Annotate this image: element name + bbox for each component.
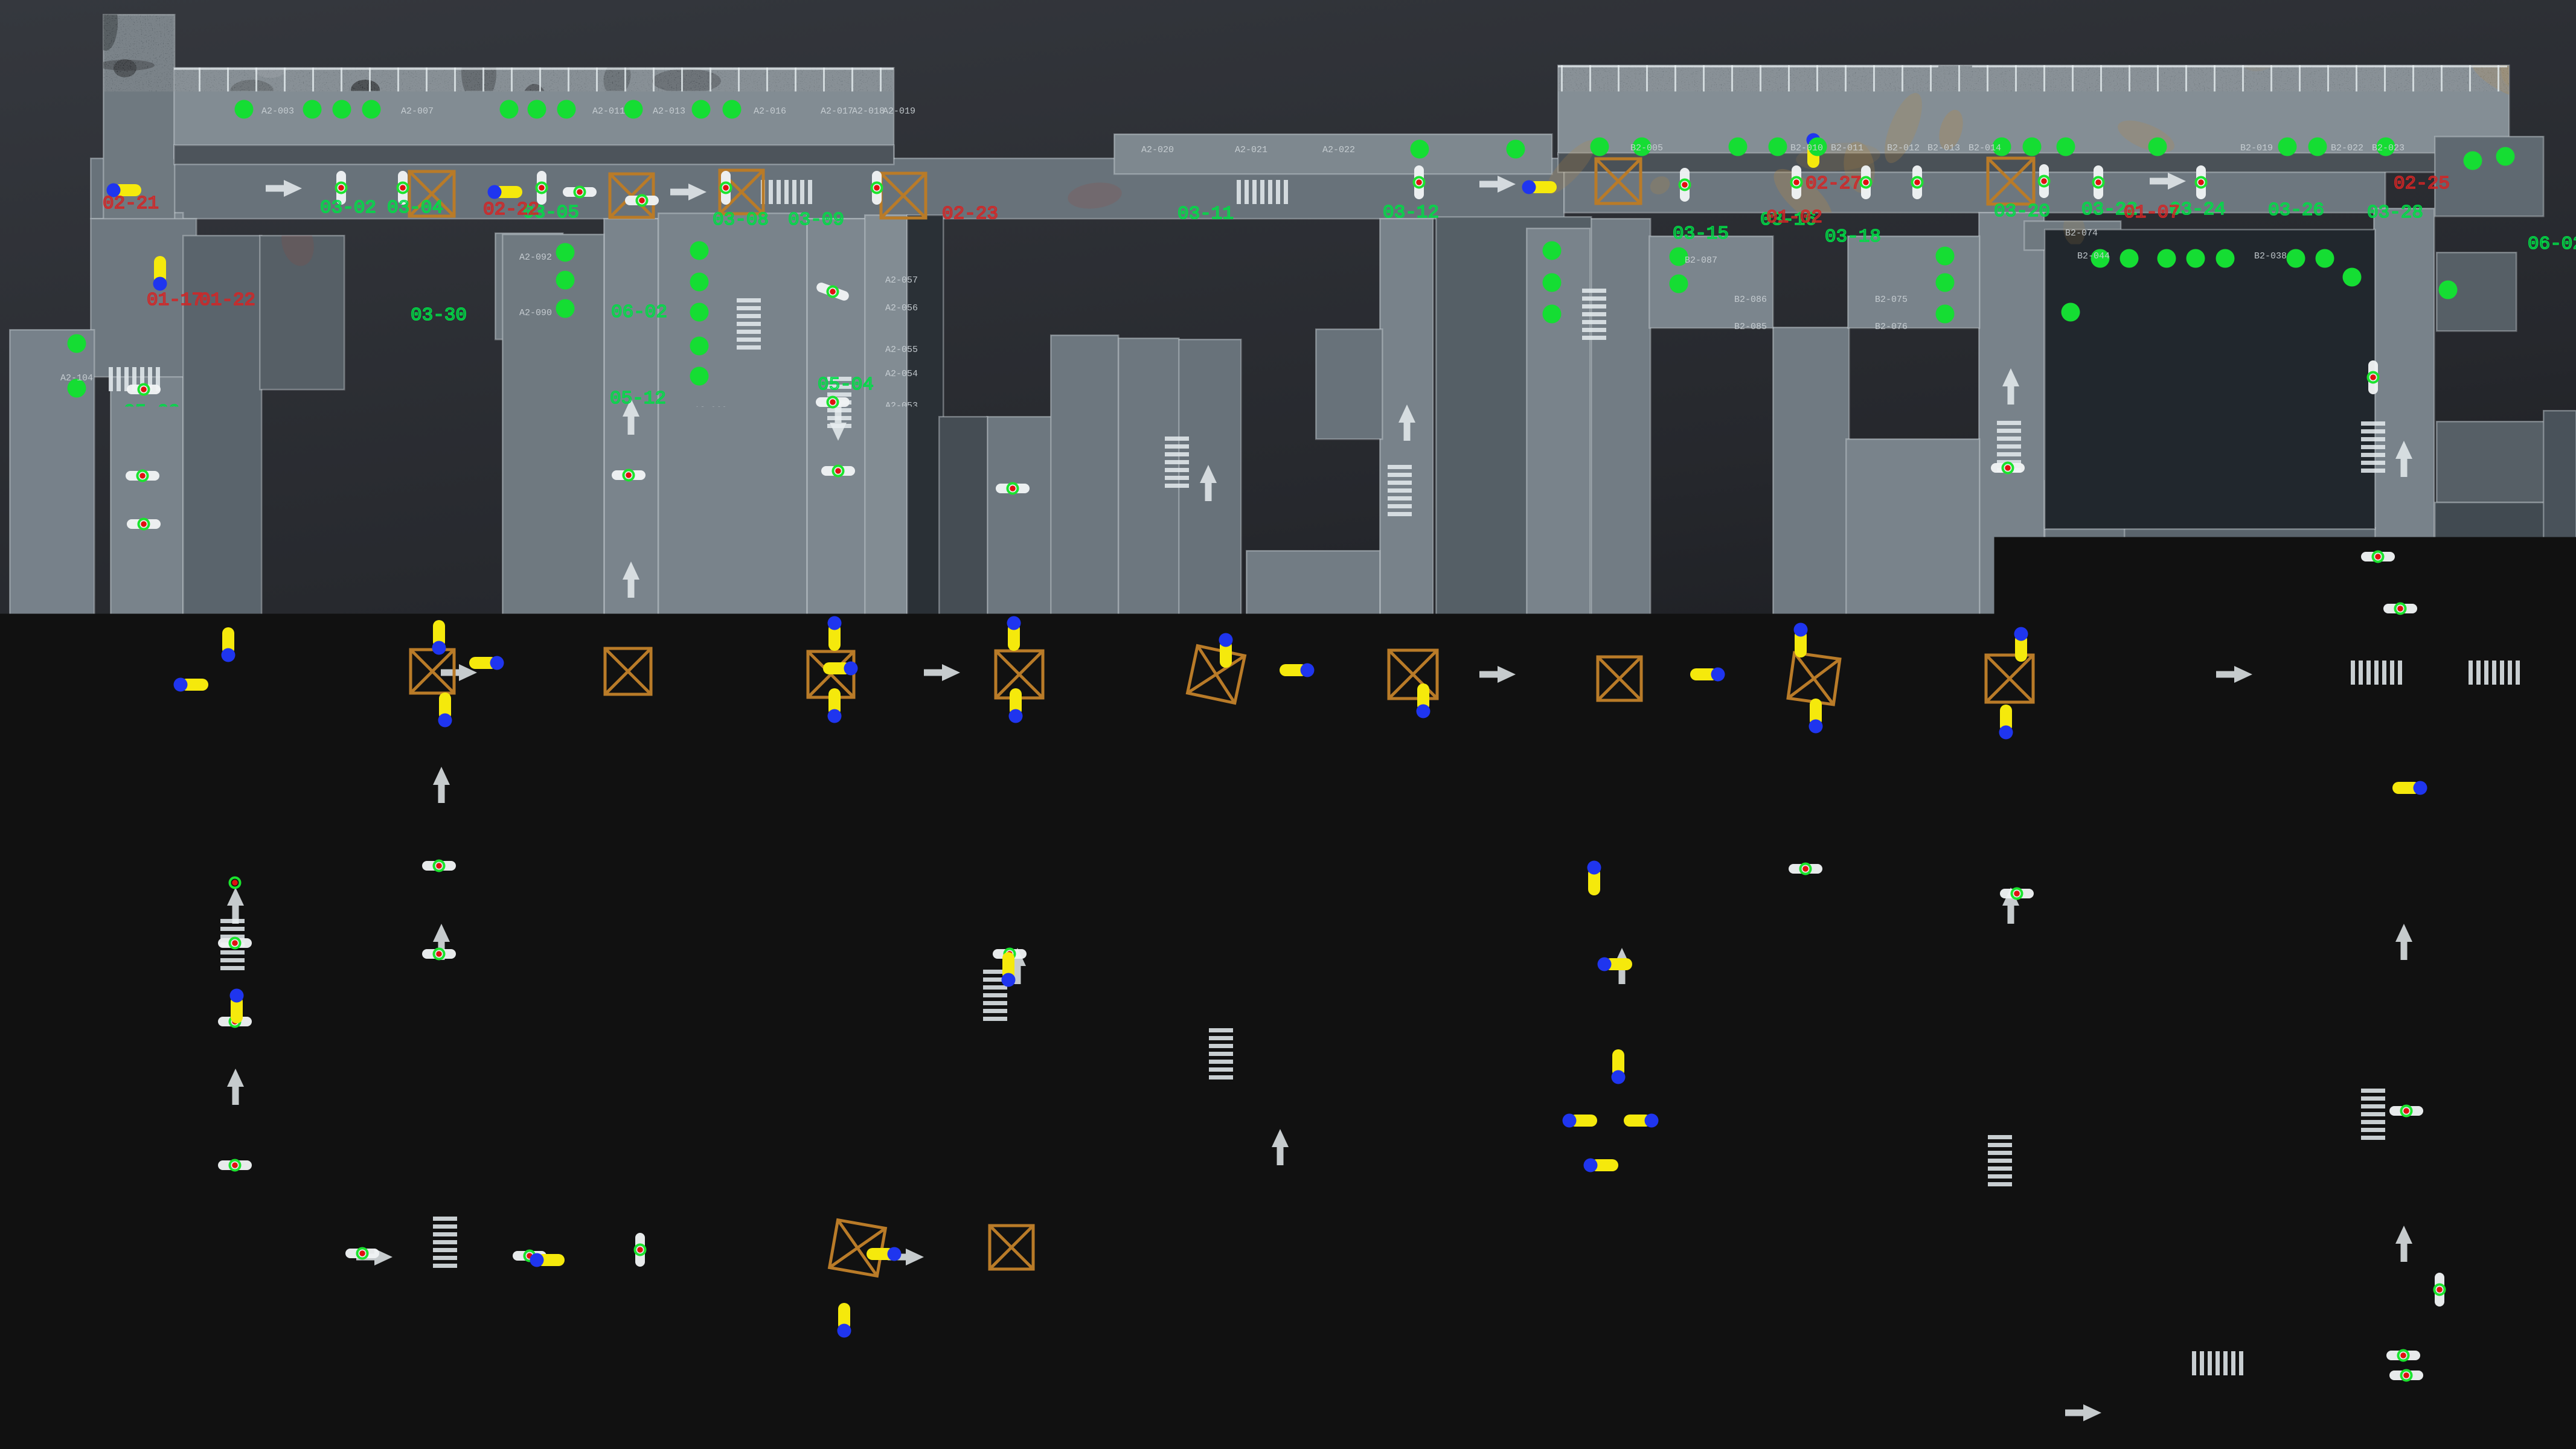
svg-text:A2-048: A2-048: [885, 568, 918, 578]
svg-text:02-28: 02-28: [1630, 1048, 1687, 1069]
svg-text:03-11: 03-11: [1177, 203, 1234, 225]
svg-text:04-32: 04-32: [2284, 1417, 2340, 1438]
svg-text:B2-023: B2-023: [2372, 143, 2405, 153]
svg-text:07-01: 07-01: [2382, 877, 2438, 898]
svg-text:A2-185: A2-185: [1098, 1143, 1130, 1153]
svg-text:02-08: 02-08: [2366, 958, 2422, 979]
svg-text:A2-053: A2-053: [885, 401, 918, 411]
svg-text:04-16: 04-16: [2376, 1276, 2432, 1297]
svg-text:B2-090: B2-090: [1677, 350, 1710, 360]
svg-text:01-09: 01-09: [1325, 1260, 1382, 1281]
svg-text:05-03: 05-03: [1371, 376, 1427, 397]
svg-text:06-05: 06-05: [1187, 505, 1243, 526]
svg-text:03-30: 03-30: [411, 305, 467, 326]
svg-text:06-02: 06-02: [2528, 234, 2576, 255]
svg-text:06-20: 06-20: [634, 799, 690, 820]
svg-text:05-08: 05-08: [1987, 376, 2043, 397]
svg-text:04-20: 04-20: [1025, 1151, 1081, 1172]
svg-text:03-04: 03-04: [387, 197, 443, 219]
svg-text:B2-164: B2-164: [1748, 732, 1781, 743]
svg-text:A2-204: A2-204: [1159, 1143, 1192, 1153]
svg-text:A2-213: A2-213: [1295, 1089, 1328, 1099]
svg-text:04-24: 04-24: [222, 1173, 278, 1194]
svg-text:02-29: 02-29: [1564, 1048, 1620, 1069]
svg-text:07-21: 07-21: [1990, 1055, 2046, 1076]
svg-text:A2-104: A2-104: [60, 373, 93, 383]
svg-text:04-03: 04-03: [2402, 1374, 2458, 1395]
svg-text:02-09: 02-09: [2082, 1405, 2138, 1426]
svg-text:02-20: 02-20: [791, 703, 847, 724]
svg-text:01-25: 01-25: [818, 648, 874, 669]
svg-text:01-23: 01-23: [434, 688, 490, 709]
svg-text:02-07: 02-07: [1792, 647, 1848, 668]
svg-text:B2-031: B2-031: [2479, 476, 2511, 486]
svg-text:07-03: 07-03: [995, 904, 1051, 925]
svg-text:B2-022: B2-022: [2331, 143, 2363, 153]
svg-text:03-12: 03-12: [1383, 202, 1439, 223]
svg-text:01-12: 01-12: [216, 660, 272, 681]
svg-text:B2-060: B2-060: [2189, 728, 2222, 738]
svg-text:05-07: 05-07: [1987, 468, 2043, 489]
svg-text:B2-063: B2-063: [1958, 629, 1990, 639]
svg-text:04-05: 04-05: [1861, 1264, 1917, 1285]
svg-text:04-07: 04-07: [1975, 1357, 2031, 1378]
svg-text:B2-087: B2-087: [1685, 255, 1717, 266]
svg-text:05-22: 05-22: [2376, 408, 2432, 429]
svg-text:A2-125: A2-125: [290, 935, 322, 945]
svg-text:06-23: 06-23: [990, 812, 1046, 833]
svg-text:06-02: 06-02: [611, 302, 667, 323]
svg-text:03-32: 03-32: [2379, 499, 2435, 520]
svg-text:05-16: 05-16: [1061, 382, 1117, 403]
svg-text:05-24: 05-24: [123, 491, 179, 512]
svg-text:A2-021: A2-021: [1235, 145, 1267, 155]
svg-text:B2-124: B2-124: [1322, 737, 1355, 747]
svg-text:A2-092: A2-092: [519, 252, 552, 263]
svg-text:B2-209: B2-209: [2237, 797, 2270, 807]
svg-text:B2-065: B2-065: [1958, 529, 1990, 539]
svg-text:05-12: 05-12: [610, 388, 666, 409]
svg-text:B2-191: B2-191: [2070, 1133, 2103, 1143]
svg-text:02-16: 02-16: [1684, 691, 1740, 712]
svg-text:B2-019: B2-019: [2240, 143, 2273, 153]
svg-text:07-10: 07-10: [1389, 975, 1445, 996]
svg-text:02-23: 02-23: [942, 203, 998, 225]
svg-text:B2-179: B2-179: [1958, 1212, 1990, 1223]
svg-text:01-05: 01-05: [821, 1340, 877, 1361]
svg-text:07-04: 07-04: [418, 903, 475, 924]
svg-text:01-07: 01-07: [2124, 202, 2180, 223]
svg-text:01-20: 01-20: [1005, 929, 1062, 950]
svg-text:07-14: 07-14: [1994, 921, 2050, 942]
svg-text:A2-031: A2-031: [1134, 625, 1167, 636]
svg-text:A2-016: A2-016: [754, 106, 786, 117]
svg-text:A2-056: A2-056: [885, 303, 918, 313]
svg-text:B2-005: B2-005: [1630, 143, 1663, 153]
svg-text:04-18: 04-18: [1226, 1125, 1282, 1146]
svg-text:07-12: 07-12: [1606, 929, 1662, 950]
svg-text:B2-086: B2-086: [1734, 295, 1767, 305]
svg-text:A2-107: A2-107: [60, 571, 93, 581]
svg-text:A2-172: A2-172: [760, 746, 792, 756]
svg-text:A2-122: A2-122: [290, 1026, 322, 1037]
svg-text:A2-089: A2-089: [480, 443, 513, 453]
svg-text:02-18: 02-18: [1268, 726, 1324, 747]
svg-text:A2-209: A2-209: [1289, 862, 1322, 872]
svg-text:01-22: 01-22: [199, 290, 255, 311]
svg-text:01-03: 01-03: [1802, 946, 1859, 967]
svg-text:04-29: 04-29: [263, 783, 319, 804]
svg-text:06-30: 06-30: [1994, 811, 2050, 832]
svg-text:02-25: 02-25: [2394, 173, 2450, 194]
svg-text:A2-078: A2-078: [559, 440, 591, 450]
svg-text:07-18: 07-18: [1389, 1037, 1445, 1058]
svg-text:07-13: 07-13: [821, 468, 877, 489]
svg-text:A2-022: A2-022: [1322, 145, 1355, 155]
svg-text:B2-102: B2-102: [1552, 418, 1584, 429]
svg-text:A2-047: A2-047: [885, 600, 918, 610]
svg-text:01-19: 01-19: [411, 640, 467, 661]
svg-text:A2-124: A2-124: [290, 966, 322, 976]
svg-text:07-17: 07-17: [1227, 1083, 1283, 1104]
svg-text:B2-057: B2-057: [2292, 728, 2324, 738]
svg-text:04-30: 04-30: [2379, 791, 2435, 812]
svg-text:B2-079: B2-079: [1871, 474, 1903, 484]
svg-text:A2-068: A2-068: [685, 469, 717, 479]
svg-text:B2-055: B2-055: [2358, 755, 2391, 765]
svg-text:B2-074: B2-074: [2065, 228, 2098, 238]
svg-text:A2-040: A2-040: [1074, 442, 1106, 452]
svg-text:07-02: 07-02: [220, 905, 277, 926]
svg-text:B2-076: B2-076: [1875, 322, 1908, 332]
svg-text:01-31: 01-31: [1382, 904, 1438, 925]
svg-text:B2-208: B2-208: [2198, 797, 2231, 807]
svg-text:A2-060: A2-060: [755, 495, 787, 505]
svg-text:A2-020: A2-020: [1141, 145, 1174, 155]
svg-text:A2-061: A2-061: [755, 536, 787, 546]
svg-text:B2-044: B2-044: [2077, 251, 2110, 261]
svg-text:01-01: 01-01: [1002, 646, 1059, 667]
svg-text:05-28: 05-28: [611, 481, 667, 502]
svg-text:B2-011: B2-011: [1831, 143, 1863, 153]
svg-text:03-18: 03-18: [1825, 226, 1881, 248]
svg-text:01-17: 01-17: [147, 290, 203, 311]
svg-text:A2-013: A2-013: [653, 106, 685, 117]
svg-text:02-10: 02-10: [2005, 720, 2061, 741]
svg-text:A2-203: A2-203: [1126, 1108, 1159, 1119]
svg-text:01-28: 01-28: [1618, 869, 1674, 891]
svg-text:02-27: 02-27: [1805, 173, 1862, 194]
svg-text:B2-161: B2-161: [1685, 945, 1717, 956]
svg-text:03-20: 03-20: [1994, 201, 2050, 222]
svg-text:05-05: 05-05: [1627, 330, 1684, 351]
svg-text:B2-056: B2-056: [2330, 728, 2362, 738]
svg-text:B2-010: B2-010: [1790, 143, 1823, 153]
svg-text:B2-198: B2-198: [2328, 1285, 2360, 1295]
svg-text:06-21: 06-21: [1987, 521, 2043, 542]
svg-text:B2-156: B2-156: [1685, 1125, 1717, 1136]
svg-text:01-02: 01-02: [1766, 207, 1822, 228]
svg-text:03-26: 03-26: [2268, 200, 2324, 221]
svg-text:A2-238: A2-238: [373, 1332, 406, 1342]
svg-text:B2-143: B2-143: [1546, 763, 1578, 773]
svg-text:B2-204: B2-204: [2328, 966, 2360, 976]
svg-text:B2-038: B2-038: [2254, 251, 2287, 261]
svg-text:02-31: 02-31: [338, 1268, 394, 1289]
svg-text:A2-019: A2-019: [883, 106, 915, 117]
svg-text:B2-219: B2-219: [2473, 921, 2505, 932]
svg-text:B2-067: B2-067: [1958, 440, 1990, 450]
svg-text:07-15: 07-15: [222, 1037, 278, 1058]
svg-text:B2-012: B2-012: [1887, 143, 1920, 153]
svg-text:03-15: 03-15: [1673, 223, 1729, 245]
svg-text:A2-011: A2-011: [592, 106, 625, 117]
svg-text:A2-143: A2-143: [513, 885, 546, 895]
svg-text:01-08: 01-08: [1570, 686, 1626, 708]
svg-text:A2-133: A2-133: [362, 761, 395, 771]
svg-text:A2-038: A2-038: [1074, 335, 1106, 345]
svg-text:A2-059: A2-059: [755, 470, 787, 480]
svg-text:02-22: 02-22: [483, 199, 539, 220]
svg-text:A2-140: A2-140: [512, 1000, 545, 1010]
svg-text:A2-062: A2-062: [755, 566, 787, 577]
svg-text:B2-201: B2-201: [2392, 1046, 2425, 1057]
svg-text:A2-017: A2-017: [821, 106, 853, 117]
svg-text:06-14: 06-14: [124, 542, 180, 563]
svg-text:04-13: 04-13: [512, 1255, 568, 1276]
svg-text:B2-170: B2-170: [1884, 764, 1917, 774]
svg-text:02-14: 02-14: [1793, 715, 1850, 737]
svg-text:B2-130: B2-130: [1478, 1089, 1511, 1099]
svg-text:B2-186: B2-186: [1932, 1325, 1965, 1335]
svg-text:A2-049: A2-049: [885, 538, 918, 548]
svg-text:04-06: 04-06: [2461, 1277, 2517, 1298]
svg-text:A2-052: A2-052: [885, 442, 918, 452]
svg-text:B3-02: B3-02: [2095, 1239, 2123, 1250]
svg-text:B2-172: B2-172: [1955, 734, 1988, 744]
svg-text:B2-013: B2-013: [1927, 143, 1960, 153]
svg-text:B2-077: B2-077: [1875, 350, 1908, 360]
svg-text:B2-078: B2-078: [1871, 440, 1903, 450]
svg-text:05-09: 05-09: [124, 401, 180, 423]
svg-text:01-24: 01-24: [223, 966, 280, 987]
svg-text:05-04: 05-04: [818, 374, 874, 395]
svg-text:04-22: 04-22: [1262, 1157, 1318, 1179]
svg-text:06-04: 06-04: [993, 610, 1049, 631]
svg-text:B2-153: B2-153: [1546, 1089, 1578, 1099]
svg-text:B2-150: B2-150: [1546, 990, 1578, 1000]
svg-text:06-28: 06-28: [1599, 801, 1655, 822]
svg-text:A2-054: A2-054: [885, 369, 918, 379]
svg-text:A2-214: A2-214: [1295, 1127, 1328, 1137]
svg-text:B2-084: B2-084: [1734, 350, 1767, 360]
svg-text:01-38: 01-38: [1751, 926, 1807, 947]
svg-text:02-06: 02-06: [2418, 912, 2475, 933]
svg-text:02-17: 02-17: [1282, 697, 1338, 718]
svg-text:B2-085: B2-085: [1734, 322, 1767, 332]
svg-text:B2-014: B2-014: [1969, 143, 2001, 153]
svg-text:01-04: 01-04: [941, 636, 997, 657]
svg-text:A2-108: A2-108: [60, 662, 93, 672]
svg-text:B3-01: B3-01: [821, 1159, 848, 1169]
svg-text:01-21: 01-21: [845, 1259, 902, 1280]
svg-text:04-12: 04-12: [732, 1259, 788, 1280]
svg-text:04-28: 04-28: [423, 797, 479, 818]
svg-text:04-15: 04-15: [264, 1259, 321, 1280]
svg-text:06-24: 06-24: [1334, 806, 1391, 827]
svg-text:02-11: 02-11: [2118, 1283, 2174, 1304]
svg-text:A2-069: A2-069: [694, 405, 727, 415]
svg-text:06-10: 06-10: [1773, 521, 1829, 542]
svg-text:05-23: 05-23: [2523, 423, 2576, 444]
svg-text:05-30: 05-30: [814, 507, 870, 528]
svg-text:B2-162: B2-162: [1676, 761, 1708, 771]
svg-text:02-12: 02-12: [2409, 660, 2465, 681]
svg-text:04-17: 04-17: [1630, 1147, 1687, 1168]
svg-text:B2-222: B2-222: [2473, 1076, 2505, 1087]
svg-text:02-04: 02-04: [1990, 649, 2046, 670]
svg-text:B2-047: B2-047: [2065, 561, 2098, 572]
svg-text:A2-064: A2-064: [716, 589, 783, 610]
svg-text:A2-179: A2-179: [961, 885, 994, 895]
svg-text:B2-075: B2-075: [1875, 295, 1908, 305]
svg-text:06-07: 06-07: [1372, 467, 1428, 488]
svg-text:B2-174: B2-174: [1884, 805, 1917, 815]
svg-text:04-11: 04-11: [921, 1253, 977, 1274]
svg-text:A2-003: A2-003: [261, 106, 294, 117]
svg-text:03-02: 03-02: [320, 197, 376, 219]
svg-text:01-13: 01-13: [1383, 1168, 1439, 1189]
svg-text:04-25: 04-25: [2376, 1119, 2432, 1140]
svg-text:04-02: 04-02: [629, 1253, 685, 1274]
svg-text:05-15: 05-15: [992, 415, 1048, 436]
svg-text:05-32: 05-32: [735, 688, 792, 709]
svg-text:01-29: 01-29: [1618, 984, 1674, 1005]
svg-text:01-06: 01-06: [1200, 662, 1257, 683]
svg-text:B2-200: B2-200: [2392, 1095, 2425, 1105]
svg-text:A2-007: A2-007: [401, 106, 434, 117]
svg-text:02-13: 02-13: [1996, 980, 2052, 1001]
svg-text:A2-165: A2-165: [700, 930, 733, 940]
svg-text:A2-055: A2-055: [885, 345, 918, 355]
svg-text:B2-135: B2-135: [1478, 930, 1511, 940]
svg-text:02-30: 02-30: [1557, 920, 1613, 941]
svg-text:03-28: 03-28: [2367, 202, 2423, 223]
svg-text:02-19: 02-19: [1033, 702, 1089, 723]
svg-text:A2-057: A2-057: [885, 275, 918, 286]
svg-text:03-08: 03-08: [713, 210, 769, 231]
svg-text:02-05: 02-05: [2033, 1401, 2089, 1422]
svg-text:01-15: 01-15: [119, 699, 175, 720]
svg-text:B2-082: B2-082: [1871, 629, 1903, 639]
svg-text:A2-051: A2-051: [885, 470, 918, 481]
svg-text:A2-101: A2-101: [211, 503, 244, 513]
svg-text:A2-090: A2-090: [519, 308, 552, 318]
svg-text:B2-154: B2-154: [1685, 1190, 1717, 1200]
svg-text:06-09: 06-09: [1588, 522, 1644, 543]
svg-text:04-14: 04-14: [423, 1256, 479, 1277]
svg-text:A2-035: A2-035: [1134, 423, 1167, 433]
svg-text:02-01: 02-01: [1292, 988, 1348, 1009]
svg-text:07-16: 07-16: [1262, 1044, 1318, 1066]
svg-text:05-18: 05-18: [1179, 380, 1235, 401]
svg-text:01-25: 01-25: [617, 717, 673, 738]
svg-text:A2-050: A2-050: [885, 496, 918, 507]
svg-text:01-30: 01-30: [1404, 1198, 1460, 1220]
svg-text:04-04: 04-04: [2278, 1374, 2334, 1395]
svg-text:07-09: 07-09: [1226, 900, 1282, 921]
svg-text:02-21: 02-21: [103, 193, 159, 214]
svg-text:01-27: 01-27: [1570, 1156, 1626, 1177]
svg-text:03-09: 03-09: [788, 210, 844, 231]
svg-text:01-10: 01-10: [1368, 688, 1424, 709]
svg-text:A2-018: A2-018: [852, 106, 885, 117]
